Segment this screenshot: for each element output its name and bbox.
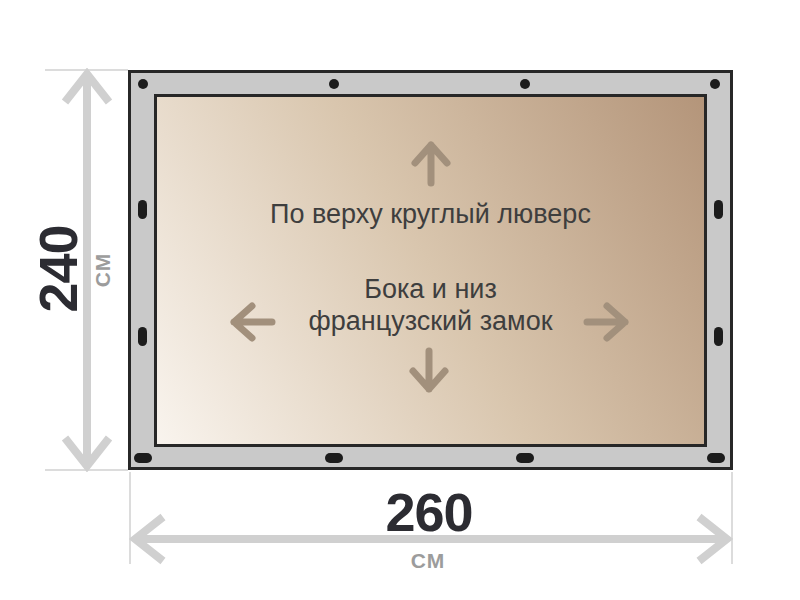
- grommet-icon: [714, 200, 723, 219]
- grommet-icon: [325, 453, 343, 463]
- grommet-icon: [520, 79, 530, 89]
- grommet-icon: [138, 79, 148, 89]
- arrow-right-icon: [581, 300, 633, 344]
- height-value: 240: [27, 225, 89, 312]
- grommet-icon: [714, 327, 723, 346]
- height-unit: см: [91, 253, 115, 287]
- annotation-top-edge: По верху круглый люверс: [157, 198, 704, 230]
- grommet-icon: [138, 200, 147, 219]
- arrow-down-icon: [407, 345, 451, 397]
- tarpaulin-dimension-diagram: 240 см 260 см По верху круглый люверс Бо…: [0, 0, 800, 600]
- grommet-icon: [710, 79, 720, 89]
- width-value: 260: [385, 481, 472, 543]
- width-unit: см: [411, 549, 445, 573]
- grommet-icon: [138, 327, 147, 346]
- grommet-icon: [329, 79, 339, 89]
- grommet-icon: [134, 453, 152, 463]
- arrow-left-icon: [226, 300, 278, 344]
- arrow-up-icon: [409, 137, 453, 187]
- tarp-frame: По верху круглый люверс Бока и низ франц…: [128, 70, 733, 470]
- tarp-surface: По верху круглый люверс Бока и низ франц…: [154, 94, 707, 447]
- grommet-icon: [707, 453, 725, 463]
- grommet-icon: [516, 453, 534, 463]
